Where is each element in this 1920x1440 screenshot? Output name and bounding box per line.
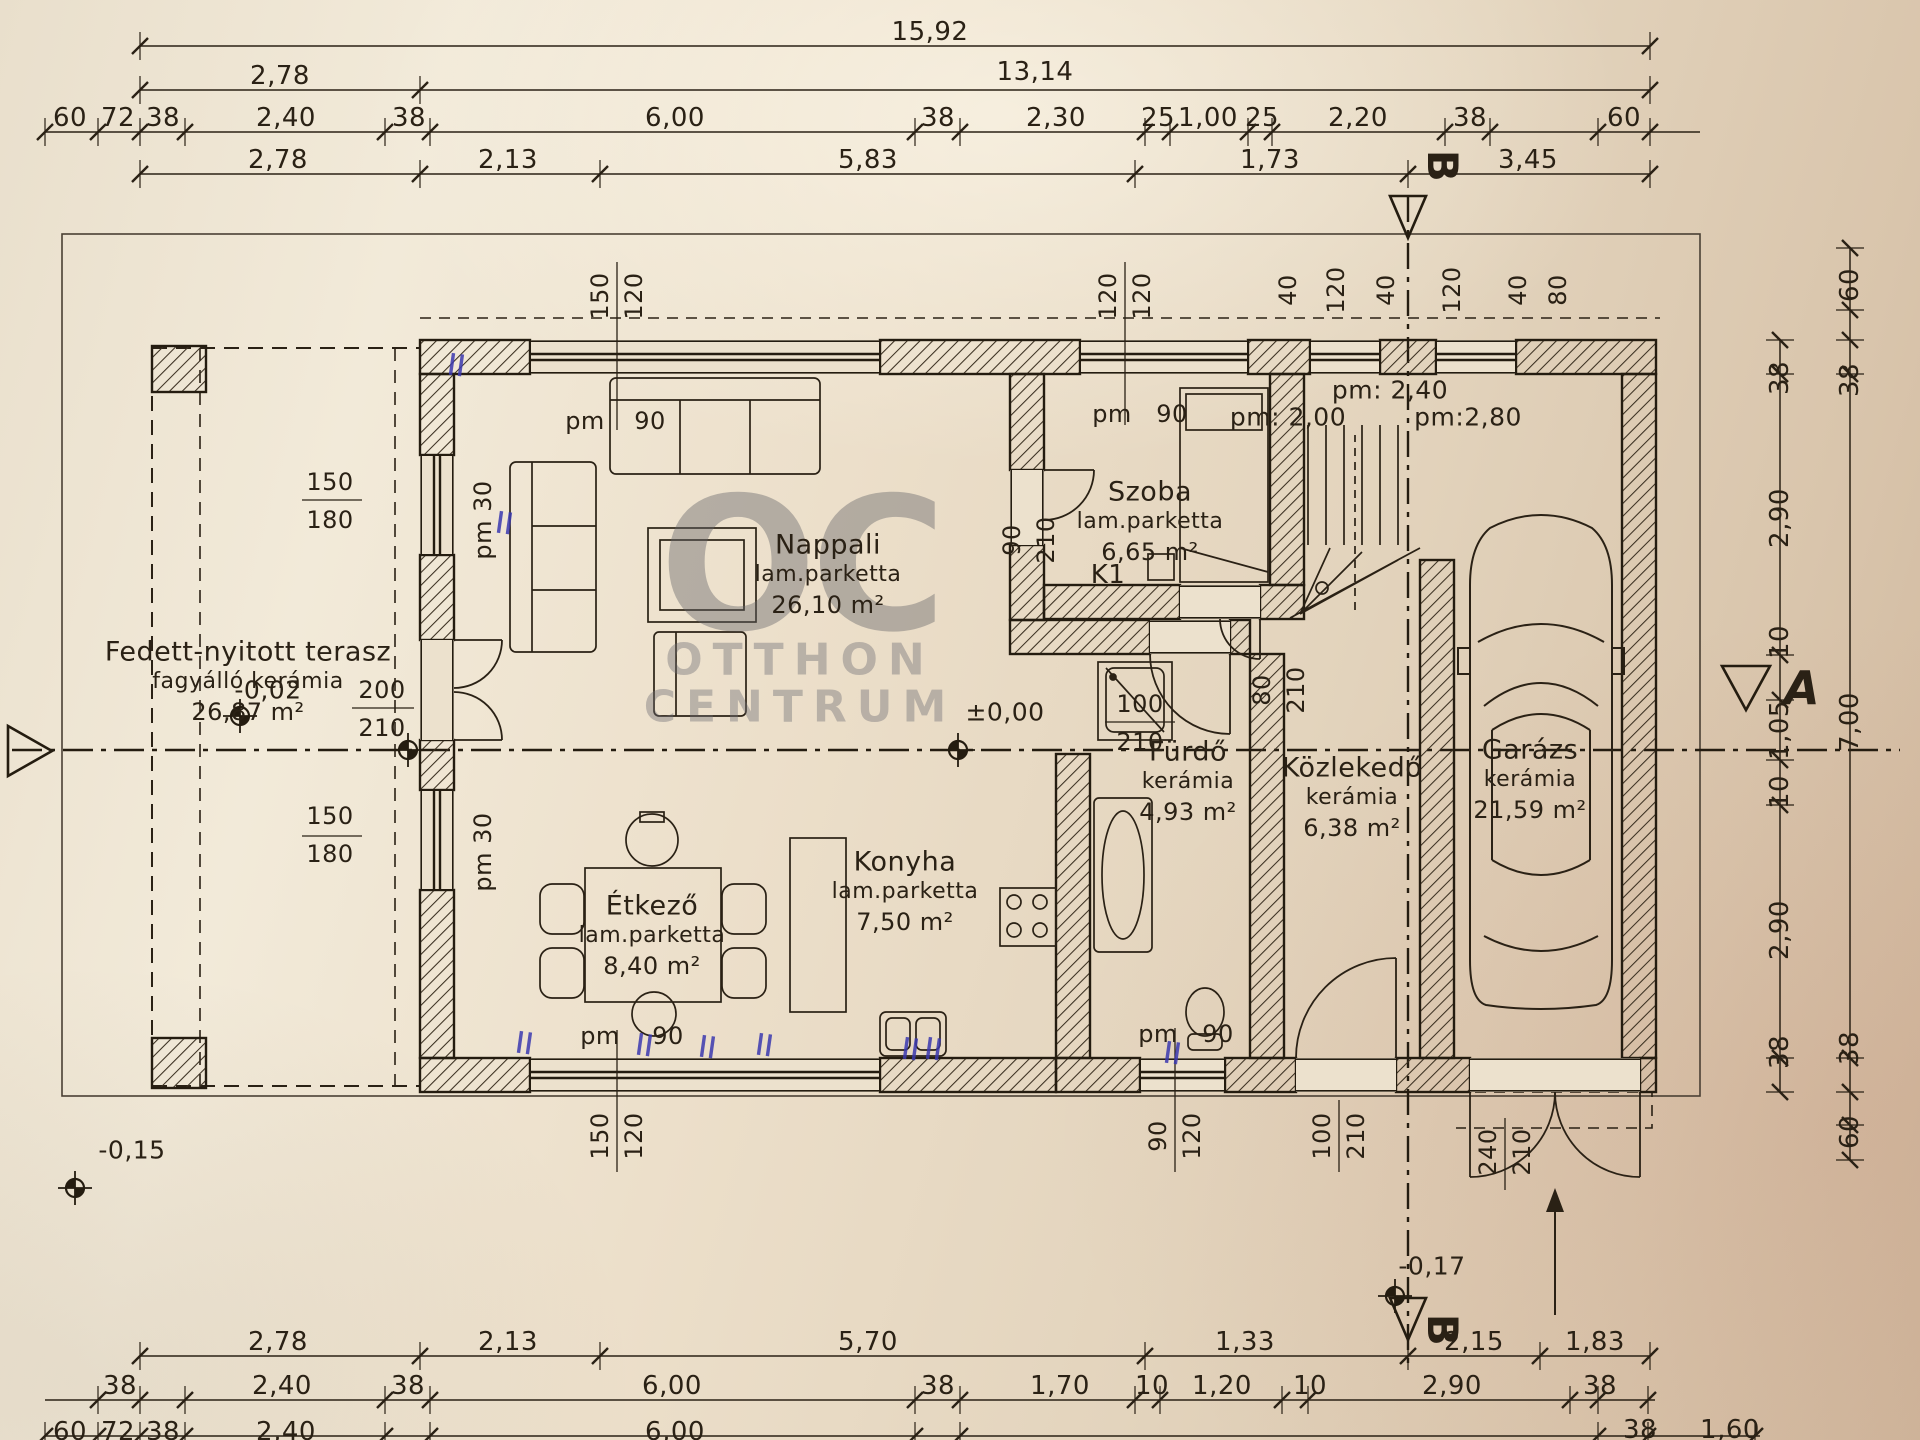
opening-label: 120 — [622, 1112, 646, 1159]
wall-segment — [420, 890, 454, 1058]
room-area: 26,10 m² — [771, 593, 884, 617]
level-benchmark — [941, 733, 975, 767]
room-area: 6,38 m² — [1303, 816, 1401, 840]
wall-segment — [1622, 374, 1656, 1058]
dim-label: 1,73 — [1240, 147, 1300, 173]
wall-segment — [1225, 1058, 1296, 1092]
dim-label: 2,13 — [478, 147, 538, 173]
dim-label: 38 — [146, 105, 180, 131]
chair — [540, 884, 584, 934]
opening-label: 90 — [1146, 1120, 1170, 1152]
dim-label: 38 — [1767, 1035, 1793, 1069]
opening-label: pm:2,80 — [1414, 405, 1522, 430]
opening-label: 180 — [306, 842, 353, 866]
level-benchmark — [58, 1171, 92, 1205]
window — [1310, 340, 1380, 374]
opening-label: 210 — [1284, 666, 1308, 713]
room-area: 8,40 m² — [603, 954, 701, 978]
dim-label: 2,40 — [252, 1373, 312, 1399]
opening-label: 90 — [652, 1024, 684, 1048]
dim-label: 2,90 — [1422, 1373, 1482, 1399]
opening-label: pm — [580, 1024, 620, 1048]
opening-label: 150 — [588, 272, 612, 319]
opening-label: 80 — [1250, 674, 1274, 706]
opening-label: pm 30 — [471, 480, 495, 559]
dim-label: 38 — [921, 1373, 955, 1399]
wall-segment — [420, 1058, 530, 1092]
opening-label: pm: 2,00 — [1230, 405, 1346, 430]
dim-label: 60 — [1837, 1115, 1863, 1149]
pen-mark — [701, 1035, 713, 1058]
opening-label: 90 — [1156, 402, 1188, 426]
dim-label: 38 — [1767, 361, 1793, 395]
dim-label: 38 — [1583, 1373, 1617, 1399]
window — [1140, 1058, 1225, 1092]
dim-label: 2,78 — [248, 1329, 308, 1355]
room-floor: kerámia — [1484, 769, 1577, 791]
dim-label: 5,70 — [838, 1329, 898, 1355]
stove — [1000, 888, 1056, 946]
wall-segment — [1056, 754, 1090, 1058]
wall-segment — [420, 740, 454, 790]
dim-label: 10 — [1767, 625, 1793, 659]
dim-label: 2,78 — [250, 63, 310, 89]
dim-label: 72 — [101, 105, 135, 131]
pen-mark — [638, 1033, 650, 1056]
dim-label: 2,78 — [248, 147, 308, 173]
dim-label: 38 — [1837, 1031, 1863, 1065]
dim-label: 72 — [101, 1419, 135, 1440]
wall-segment — [420, 374, 454, 455]
wall-segment — [1250, 654, 1284, 1058]
dim-label: 60 — [1837, 268, 1863, 302]
dim-label: 38 — [103, 1373, 137, 1399]
chair — [540, 948, 584, 998]
room-name: Fedett-nyitott terasz — [105, 639, 391, 666]
opening-label: 120 — [622, 272, 646, 319]
dim-label: 1,33 — [1215, 1329, 1275, 1355]
door-opening — [1470, 1058, 1640, 1092]
garage-door-swing — [1555, 1092, 1640, 1177]
wall-segment — [880, 340, 1080, 374]
kitchen-island — [790, 838, 846, 1012]
dim-label: 2,90 — [1767, 488, 1793, 548]
room-floor: kerámia — [1142, 771, 1235, 793]
room-floor: lam.parketta — [1077, 511, 1224, 533]
wall-segment — [1044, 585, 1180, 619]
sofa — [510, 462, 596, 652]
opening-label: 90 — [1202, 1022, 1234, 1046]
dim-label: 60 — [53, 105, 87, 131]
dim-label: 38 — [392, 105, 426, 131]
opening-label: 150 — [306, 470, 353, 494]
opening-label: 210 — [1344, 1112, 1368, 1159]
opening-label: 120 — [1130, 272, 1154, 319]
door-opening — [420, 640, 454, 740]
dim-label: 1,60 — [1700, 1417, 1760, 1440]
dim-label: 1,70 — [1030, 1373, 1090, 1399]
dim-label: 60 — [1607, 105, 1641, 131]
dim-label: 38 — [921, 105, 955, 131]
terrace-door-swing — [454, 640, 502, 688]
opening-label: 200 — [358, 678, 405, 702]
door-opening — [1150, 620, 1230, 654]
chair — [722, 948, 766, 998]
window — [530, 1058, 880, 1092]
terrace-door-swing — [454, 692, 502, 740]
room-floor: lam.parketta — [579, 925, 726, 947]
dim-label: 2,30 — [1026, 105, 1086, 131]
opening-label: 40 — [1374, 274, 1398, 306]
dim-label: 10 — [1135, 1373, 1169, 1399]
window — [1436, 340, 1516, 374]
dim-label: 38 — [1453, 105, 1487, 131]
room-area: 6,65 m² — [1101, 540, 1199, 564]
dim-label: 1,00 — [1178, 105, 1238, 131]
opening-label: 100 — [1310, 1112, 1334, 1159]
dim-label: 2,20 — [1328, 105, 1388, 131]
wall-segment — [1248, 340, 1310, 374]
watermark-line1: OTTHON — [665, 635, 935, 686]
wall-segment — [1010, 620, 1150, 654]
opening-label: 100 — [1116, 692, 1163, 716]
level-label: -0,15 — [98, 1138, 165, 1163]
room-area: 4,93 m² — [1139, 800, 1237, 824]
stairs — [1290, 425, 1420, 618]
dim-label: 38 — [146, 1419, 180, 1440]
dim-label: 5,83 — [838, 147, 898, 173]
dim-label: 3,45 — [1498, 147, 1558, 173]
room-name: Étkező — [606, 893, 699, 920]
door-opening — [1180, 585, 1260, 619]
opening-label: 90 — [634, 409, 666, 433]
room-name: Közlekedő — [1282, 755, 1423, 782]
opening-label: pm — [1138, 1022, 1178, 1046]
wall-segment — [1640, 1058, 1656, 1092]
opening-label: 150 — [588, 1112, 612, 1159]
window — [420, 455, 454, 555]
dim-label: 15,92 — [892, 19, 969, 45]
dim-label: 6,00 — [642, 1373, 702, 1399]
section-triangle-a — [1722, 666, 1770, 710]
section-label-a: A — [1784, 665, 1820, 711]
dim-label: 6,00 — [645, 1419, 705, 1440]
opening-label: 80 — [1546, 274, 1570, 306]
wall-segment — [152, 346, 206, 392]
wall-segment — [1516, 340, 1656, 374]
level-label: ±0,00 — [965, 700, 1044, 725]
room-area: 26,87 m² — [191, 700, 304, 724]
opening-label: 120 — [1324, 266, 1348, 313]
opening-label: 180 — [306, 508, 353, 532]
window — [1080, 340, 1248, 374]
room-name: Konyha — [854, 849, 957, 876]
opening-label: 210 — [358, 716, 405, 740]
dim-label: 38 — [1837, 363, 1863, 397]
room-name: Szoba — [1108, 479, 1192, 506]
opening-label: 120 — [1440, 266, 1464, 313]
room-name: Garázs — [1482, 737, 1578, 764]
room-area: 7,50 m² — [856, 910, 954, 934]
opening-label: 210 — [1510, 1128, 1534, 1175]
room-floor: lam.parketta — [755, 564, 902, 586]
dim-label: 7,00 — [1837, 692, 1863, 752]
door-opening — [1296, 1058, 1396, 1092]
dim-label: 38 — [1623, 1417, 1657, 1440]
opening-label: 120 — [1180, 1112, 1204, 1159]
pen-mark — [498, 511, 510, 534]
opening-label: 120 — [1096, 272, 1120, 319]
dim-label: 1,20 — [1192, 1373, 1252, 1399]
wall-segment — [880, 1058, 1056, 1092]
room-area: 21,59 m² — [1473, 798, 1586, 822]
dim-label: 60 — [53, 1419, 87, 1440]
opening-label: pm — [565, 409, 605, 433]
dim-label: 6,00 — [645, 105, 705, 131]
opening-label: 40 — [1506, 274, 1530, 306]
opening-label: 210 — [1034, 516, 1058, 563]
opening-label: 90 — [1000, 524, 1024, 556]
level-label: -0,17 — [1398, 1254, 1465, 1279]
wall-segment — [1420, 560, 1454, 1058]
watermark-line2: CENTRUM — [644, 682, 957, 733]
room-floor: lam.parketta — [832, 881, 979, 903]
wall-segment — [1396, 1058, 1470, 1092]
pen-mark — [518, 1031, 530, 1054]
wall-segment — [1056, 1058, 1140, 1092]
wall-segment — [1010, 374, 1044, 470]
dim-label: 13,14 — [997, 59, 1074, 85]
wall-segment — [1380, 340, 1436, 374]
room-name: Fürdő — [1149, 739, 1227, 766]
dim-label: 2,40 — [256, 1419, 316, 1440]
wall-segment — [152, 1038, 206, 1088]
room-floor: fagyálló kerámia — [152, 671, 343, 693]
dim-label: 1,83 — [1565, 1329, 1625, 1355]
dim-label: 25 — [1245, 105, 1279, 131]
section-label-b: B — [1421, 150, 1463, 183]
dim-label: 2,13 — [478, 1329, 538, 1355]
garage-entry-arrow — [1546, 1188, 1564, 1315]
dim-label: 25 — [1141, 105, 1175, 131]
dim-label: 10 — [1767, 775, 1793, 809]
section-label-b: B — [1421, 1314, 1463, 1347]
opening-label: pm: 2,40 — [1332, 378, 1448, 403]
dim-label: 2,40 — [256, 105, 316, 131]
dim-label: 10 — [1293, 1373, 1327, 1399]
opening-label: pm — [1092, 402, 1132, 426]
opening-label: 150 — [306, 804, 353, 828]
chair — [722, 884, 766, 934]
room-name: Nappali — [775, 532, 881, 559]
pen-mark — [758, 1033, 770, 1056]
window — [420, 790, 454, 890]
window — [530, 340, 880, 374]
entry-door-swing — [1296, 958, 1396, 1058]
dim-label: 38 — [391, 1373, 425, 1399]
opening-label: 240 — [1476, 1128, 1500, 1175]
opening-label: pm 30 — [471, 812, 495, 891]
floor-plan-page: OC OTTHON CENTRUM 15,922,7813,146072382,… — [0, 0, 1920, 1440]
vase — [626, 812, 678, 866]
opening-label: 40 — [1276, 274, 1300, 306]
dim-label: 2,90 — [1767, 900, 1793, 960]
wall-segment — [420, 555, 454, 640]
room-floor: kerámia — [1306, 787, 1399, 809]
sink — [880, 1012, 946, 1056]
wall-segment — [420, 340, 530, 374]
